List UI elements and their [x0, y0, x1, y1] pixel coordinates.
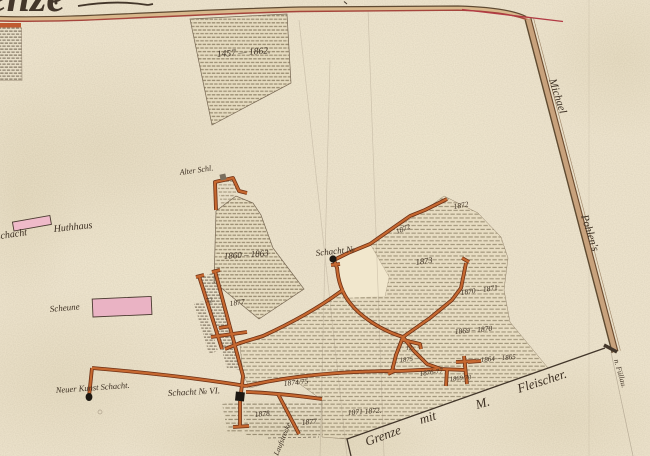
svg-text:1875: 1875	[400, 356, 414, 364]
svg-text:1878: 1878	[254, 408, 270, 419]
svg-text:1877: 1877	[301, 416, 317, 427]
svg-text:12.: 12.	[406, 345, 414, 352]
